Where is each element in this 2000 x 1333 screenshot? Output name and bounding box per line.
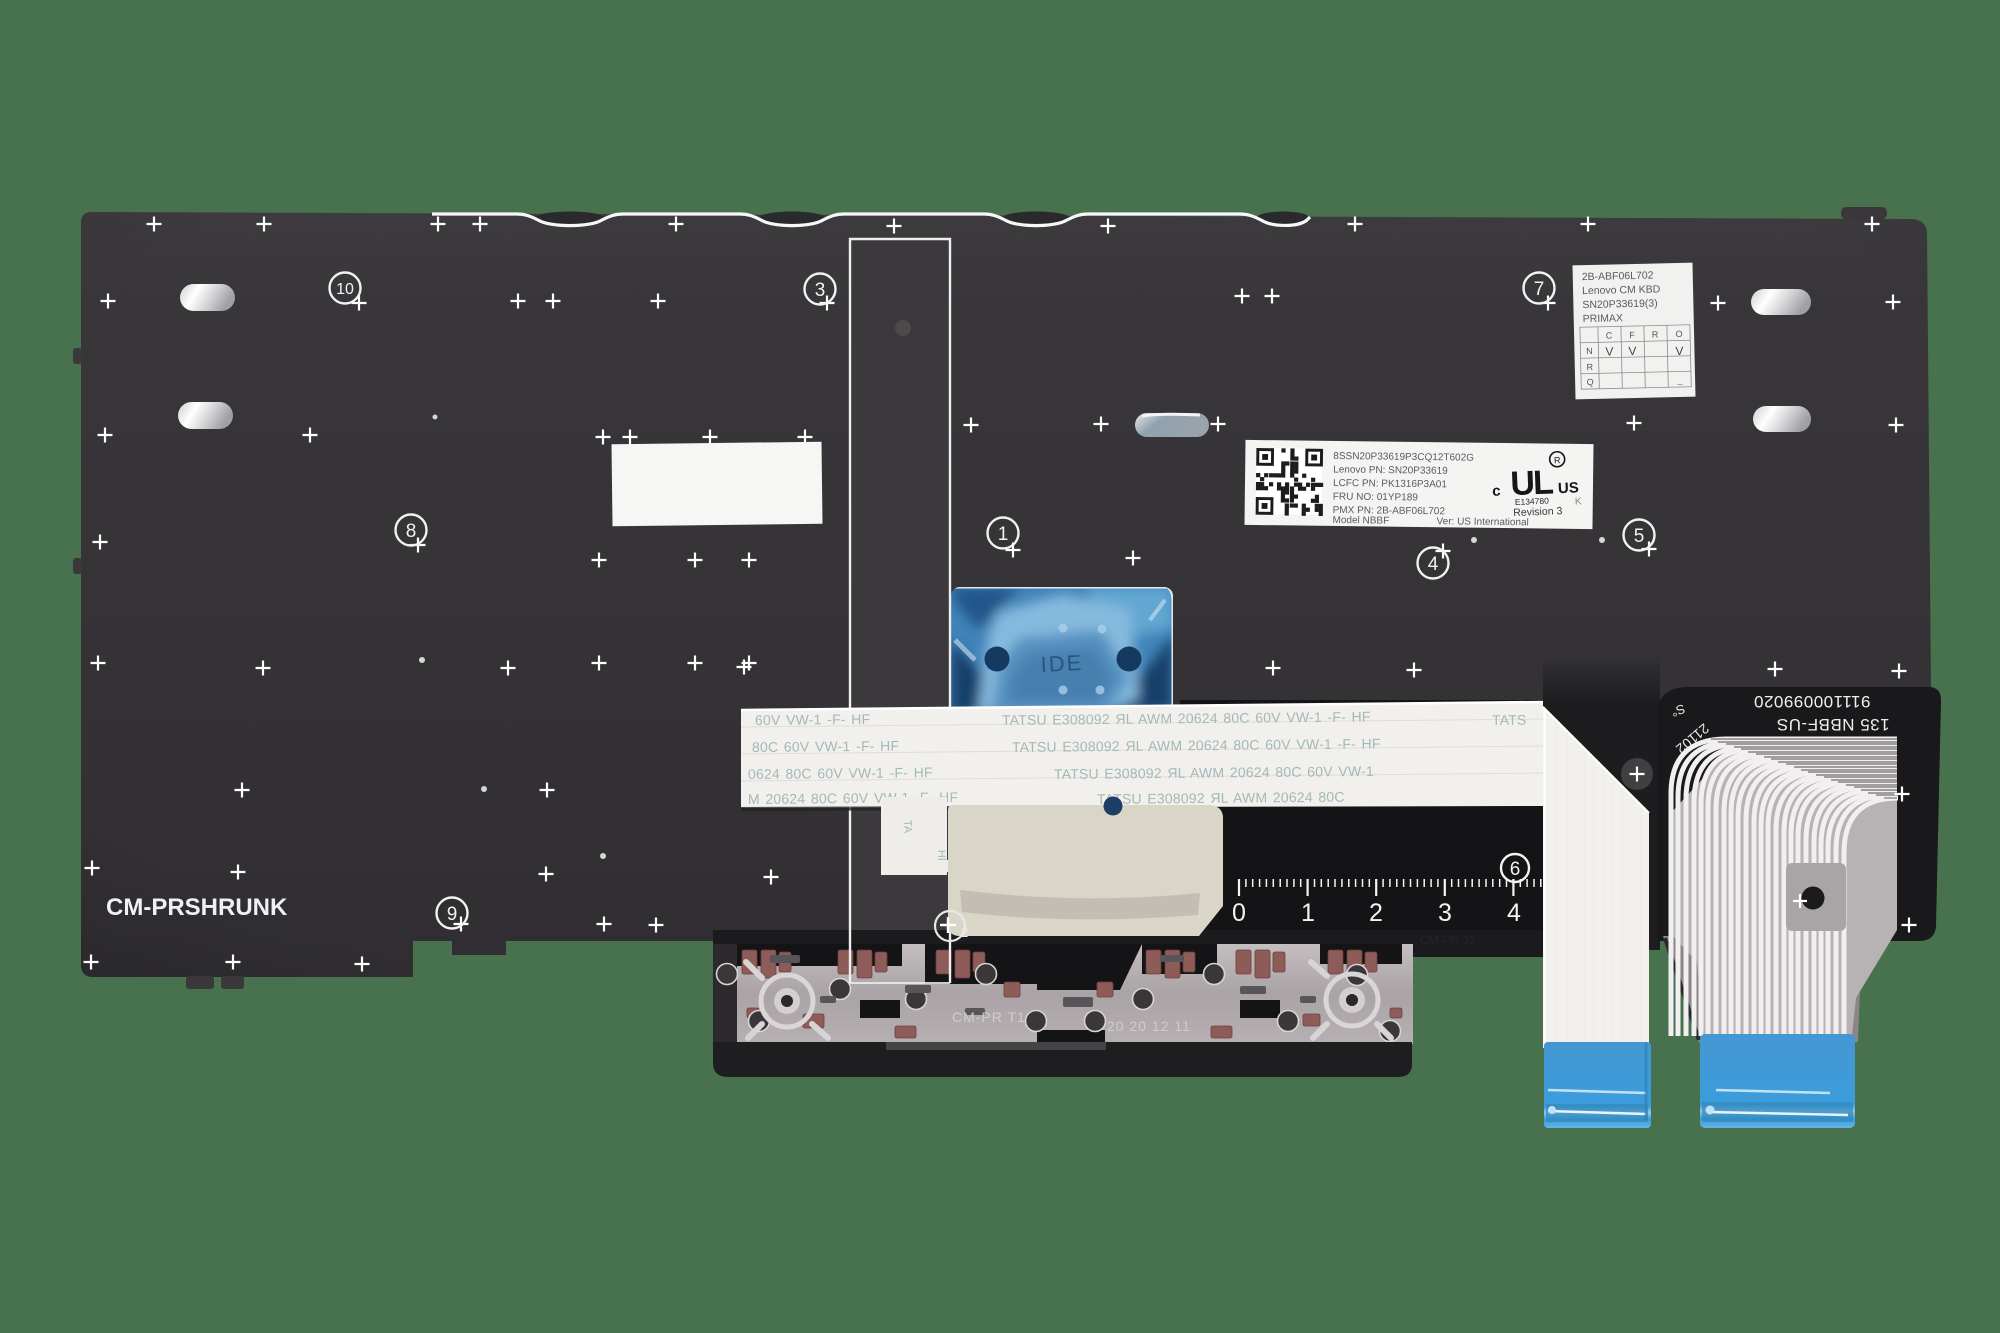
svg-text:TATS: TATS <box>1492 712 1527 728</box>
svg-text:135 NBBF-US: 135 NBBF-US <box>1776 715 1889 734</box>
svg-text:CM-PR T1: CM-PR T1 <box>952 1009 1026 1025</box>
svg-text:2B-ABF06L702: 2B-ABF06L702 <box>1582 270 1654 284</box>
svg-text:V: V <box>1605 344 1613 358</box>
svg-text:FRU NO: 01YP189: FRU NO: 01YP189 <box>1333 491 1419 503</box>
svg-text:O: O <box>1675 329 1682 339</box>
svg-text:Lenovo PN: SN20P33619: Lenovo PN: SN20P33619 <box>1333 464 1448 476</box>
svg-text:Model NBBF: Model NBBF <box>1332 515 1389 527</box>
svg-text:2: 2 <box>1369 899 1383 927</box>
svg-text:911100099020: 911100099020 <box>1754 692 1871 711</box>
svg-text:LCFC PN: PK1316P3A01: LCFC PN: PK1316P3A01 <box>1333 478 1448 490</box>
svg-text:V: V <box>1675 344 1683 358</box>
svg-text:F: F <box>1629 330 1635 340</box>
svg-text:C: C <box>1606 330 1613 340</box>
svg-text:N: N <box>1586 346 1593 356</box>
svg-text:Lenovo CM KBD: Lenovo CM KBD <box>1582 283 1661 297</box>
svg-text:CM-PRSHRUNK: CM-PRSHRUNK <box>106 894 288 921</box>
svg-text:20 20 12 11: 20 20 12 11 <box>1107 1018 1191 1034</box>
svg-text:3: 3 <box>815 280 826 301</box>
svg-text:9: 9 <box>447 904 458 925</box>
svg-text:10: 10 <box>336 281 354 298</box>
svg-text:R: R <box>1652 329 1659 339</box>
svg-text:SN20P33619(3): SN20P33619(3) <box>1582 297 1658 311</box>
svg-text:K: K <box>1575 496 1582 507</box>
svg-text:IDE: IDE <box>1040 650 1084 677</box>
svg-text:4: 4 <box>1428 554 1439 575</box>
svg-text:0624 80C 60V VW-1 -F- HF: 0624 80C 60V VW-1 -F- HF <box>748 764 933 782</box>
svg-text:6: 6 <box>1510 859 1521 880</box>
svg-text:8: 8 <box>406 521 417 542</box>
svg-text:TA: TA <box>901 820 913 834</box>
svg-text:5: 5 <box>1634 526 1645 547</box>
svg-text:Revision 3: Revision 3 <box>1513 505 1563 519</box>
svg-text:0: 0 <box>1232 899 1246 927</box>
svg-text:7: 7 <box>1534 279 1545 300</box>
svg-text:1: 1 <box>1301 899 1315 927</box>
svg-text:Q: Q <box>1587 377 1594 387</box>
svg-text:R: R <box>1554 455 1561 465</box>
svg-text:4: 4 <box>1507 899 1521 927</box>
svg-text:PRIMAX: PRIMAX <box>1583 312 1624 325</box>
svg-text:1: 1 <box>998 524 1009 545</box>
svg-text:TATSU E308092 ЯL AWM 20624: TATSU E308092 ЯL AWM 20624 80C 60V VW-1 <box>1054 763 1374 782</box>
svg-text:CM-PR J1: CM-PR J1 <box>1420 933 1476 947</box>
svg-text:3: 3 <box>1438 899 1452 927</box>
svg-text:c: c <box>1492 483 1501 500</box>
svg-text:US: US <box>1558 479 1580 497</box>
svg-text:60V VW-1 -F- HF: 60V VW-1 -F- HF <box>755 711 871 728</box>
svg-text:8SSN20P33619P3CQ12T602G: 8SSN20P33619P3CQ12T602G <box>1333 451 1474 464</box>
svg-text:2: 2 <box>961 925 968 940</box>
svg-text:80C 60V VW-1 -F- HF: 80C 60V VW-1 -F- HF <box>752 738 899 755</box>
svg-text:TATSU E308092 ЯL AWM 20624: TATSU E308092 ЯL AWM 20624 80C <box>1097 789 1345 807</box>
svg-text:V: V <box>1628 344 1636 358</box>
svg-text:R: R <box>1586 362 1593 372</box>
